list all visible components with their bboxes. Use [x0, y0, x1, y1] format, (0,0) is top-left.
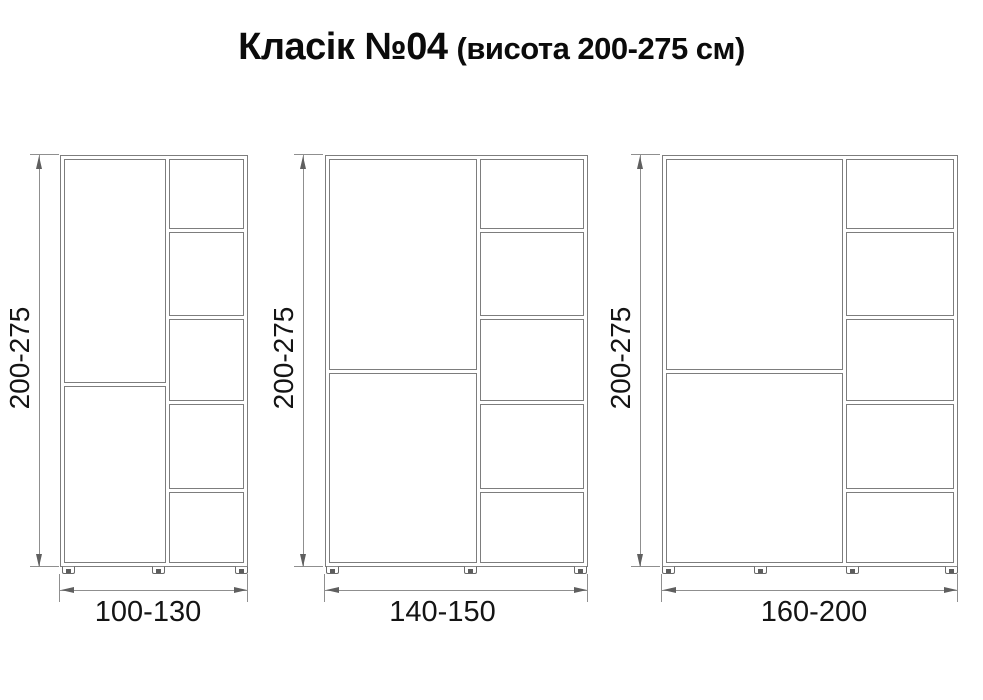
- shelf-cell: [846, 232, 954, 317]
- arrow-up-icon: [637, 156, 643, 169]
- arrow-down-icon: [36, 554, 42, 567]
- arrow-left-icon: [61, 587, 74, 593]
- height-dim-tick-bottom: [631, 566, 660, 567]
- height-dimension-line: [39, 155, 40, 567]
- shelf-cell: [169, 319, 244, 401]
- height-dim-tick-top: [631, 154, 660, 155]
- arrow-up-icon: [36, 156, 42, 169]
- shelf-cell: [846, 404, 954, 490]
- arrow-down-icon: [637, 554, 643, 567]
- width-dimension-line: [60, 590, 248, 591]
- cabinet-foot: [754, 566, 767, 574]
- width-dim-label: 100-130: [54, 596, 242, 628]
- height-dim-label: 200-275: [606, 278, 636, 438]
- shelf-cell: [846, 492, 954, 563]
- door-column: [666, 159, 843, 563]
- door-panel-top: [64, 159, 166, 383]
- shelf-column: [480, 159, 584, 563]
- title-height-range: (висота 200-275 см): [457, 31, 745, 66]
- shelf-cell: [169, 159, 244, 229]
- height-dim-label: 200-275: [269, 278, 299, 438]
- cabinet-body: [662, 155, 958, 567]
- shelf-cell: [480, 492, 584, 563]
- cabinet-body: [325, 155, 588, 567]
- page-title: Класік №04(висота 200-275 см): [0, 26, 983, 69]
- height-dim-tick-bottom: [294, 566, 323, 567]
- cabinet-foot: [62, 566, 75, 574]
- height-dim-tick-top: [30, 154, 59, 155]
- door-column: [64, 159, 166, 563]
- width-ext-line-right: [587, 574, 588, 602]
- cabinet-body: [60, 155, 248, 567]
- width-dim-label: 140-150: [311, 596, 574, 628]
- height-dimension-line: [640, 155, 641, 567]
- width-ext-line-right: [247, 574, 248, 602]
- shelf-cell: [169, 404, 244, 490]
- shelf-cell: [169, 492, 244, 563]
- arrow-left-icon: [326, 587, 339, 593]
- shelf-column: [169, 159, 244, 563]
- door-panel-bottom: [329, 373, 477, 563]
- height-dim-label: 200-275: [5, 278, 35, 438]
- width-ext-line-left: [661, 574, 662, 602]
- arrow-up-icon: [300, 156, 306, 169]
- shelf-cell: [480, 319, 584, 401]
- cabinet-foot: [574, 566, 587, 574]
- door-column: [329, 159, 477, 563]
- shelf-column: [846, 159, 954, 563]
- shelf-cell: [846, 159, 954, 229]
- cabinet-foot: [152, 566, 165, 574]
- height-dim-tick-top: [294, 154, 323, 155]
- title-product-name: Класік №04: [238, 26, 447, 68]
- shelf-cell: [480, 404, 584, 490]
- diagram-canvas: Класік №04(висота 200-275 см) 200-275: [0, 0, 983, 700]
- shelf-cell: [169, 232, 244, 317]
- width-dim-label: 160-200: [666, 596, 962, 628]
- door-panel-bottom: [64, 386, 166, 563]
- cabinet-foot: [326, 566, 339, 574]
- door-panel-bottom: [666, 373, 843, 563]
- height-dimension-line: [303, 155, 304, 567]
- arrow-down-icon: [300, 554, 306, 567]
- arrow-right-icon: [944, 587, 957, 593]
- door-panel-top: [329, 159, 477, 370]
- arrow-right-icon: [234, 587, 247, 593]
- height-dim-tick-bottom: [30, 566, 59, 567]
- cabinet-foot: [846, 566, 859, 574]
- width-dimension-line: [325, 590, 588, 591]
- cabinet-foot: [464, 566, 477, 574]
- cabinet-foot: [235, 566, 248, 574]
- width-dimension-line: [662, 590, 958, 591]
- shelf-cell: [480, 159, 584, 229]
- cabinet-foot: [945, 566, 958, 574]
- arrow-left-icon: [663, 587, 676, 593]
- door-panel-top: [666, 159, 843, 370]
- shelf-cell: [846, 319, 954, 401]
- shelf-cell: [480, 232, 584, 317]
- cabinet-foot: [662, 566, 675, 574]
- arrow-right-icon: [574, 587, 587, 593]
